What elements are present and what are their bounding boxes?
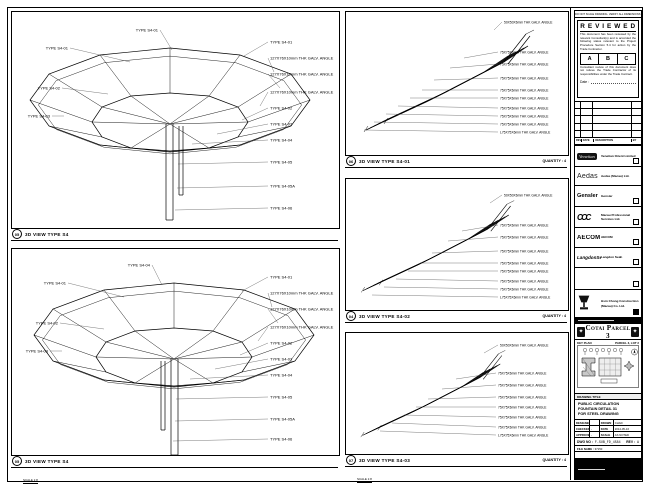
callout-leader-line (215, 359, 268, 369)
callout-label: TYPE S4-01 (270, 274, 293, 279)
consultant-row-aecom: AECOM AECOM (575, 228, 641, 248)
consultant-row-gensler: Gensler Gensler (575, 186, 641, 207)
callout-leader-line (68, 283, 124, 297)
rev-label: REV : (626, 440, 635, 444)
callout-label: 127X76X10mm THK GALV. ANGLE (270, 55, 334, 60)
callout-label: TYPE S4-03 (270, 356, 293, 361)
callout-label: 127X76X10mm THK GALV. ANGLE (270, 290, 334, 295)
callout-leader-line (428, 397, 496, 399)
date-fill-line (591, 79, 636, 84)
callout-leader-line (62, 88, 108, 94)
structure-drawing-s4-bottom: TYPE S4-04TYPE S4-01TYPE S4-02TYPE S4-03… (12, 249, 339, 455)
callout-label: 75X75X6mm THK GALV. ANGLE (500, 62, 549, 66)
callout-label: 75X75X6mm THK GALV. ANGLE (500, 261, 549, 265)
callout-label: 75X75X6mm THK GALV. ANGLE (500, 269, 549, 273)
structure-drawing-s4-03: 50X50X6mm THK GALV. ANGLE75X75X6mm THK G… (346, 333, 568, 454)
callout-leader-line (442, 385, 496, 389)
langdon-seah-logo: LangdonSeah (577, 255, 601, 260)
aedas-logo: Aedas (577, 173, 598, 180)
consultant-row-empty (575, 268, 641, 290)
callout-leader-line (178, 162, 268, 164)
callout-label: 75X75X6mm THK GALV. ANGLE (500, 106, 549, 110)
callout-leader-line (490, 195, 502, 203)
detail-number-bubble: 05 (12, 456, 22, 466)
consultant-row-venetian: Venetian Venetian Orient Limited (575, 146, 641, 167)
callout-leader-line (396, 279, 498, 281)
drawing-sheet-page: { "panels": [ {"key":"tl","num":"05","ti… (0, 0, 650, 488)
stamp-paragraph-1: This document has been reviewed by the r… (580, 33, 636, 51)
callout-leader-line (242, 108, 268, 120)
consultant-name: Venetian Orient Limited (601, 154, 636, 158)
callout-label: 127X76X10mm THK GALV. ANGLE (270, 89, 334, 94)
consultant-checkbox (633, 219, 639, 225)
checked-label: CHECKED (575, 426, 590, 431)
callout-leader-line (152, 265, 162, 285)
callout-label: 127X76X10mm THK GALV. ANGLE (270, 71, 334, 76)
callout-leader-line (448, 237, 498, 241)
drawn-value: CHAD (614, 420, 641, 425)
review-stamp: R E V I E W E D This document has been r… (575, 18, 641, 102)
callout-label: 50X50X6mm THK GALV. ANGLE (504, 193, 553, 197)
designed-label: DESIGNED (575, 420, 590, 425)
callout-leader-line (176, 397, 268, 399)
callout-label: 75X75X6mm THK GALV. ANGLE (498, 383, 547, 387)
rev-col-header: REV (575, 139, 582, 142)
reviewed-stamp-title: R E V I E W E D (580, 22, 636, 32)
file-name-label: FILE NAME : (577, 447, 594, 451)
consultant-checkbox (633, 259, 639, 265)
callout-label: TYPE S4-01 (136, 27, 159, 32)
dwg-no-label: DWG NO : (577, 440, 593, 444)
consultant-name: Macau Professional Services Ltd. (601, 213, 630, 221)
callout-leader-line (384, 287, 498, 289)
callout-label: L75X75X6mm THK GALV. ANGLE (500, 130, 551, 134)
contractor-name: Hsin Chong Construction (Macau) Co. Ltd. (601, 299, 638, 307)
callout-label: 75X75X6mm THK GALV. ANGLE (498, 405, 547, 409)
drawing-title-line-3: FOR STEEL DRAWING (578, 412, 638, 417)
consultant-name: Aedas (Macau) Ltd. (601, 174, 629, 178)
callout-label: TYPE S4-04 (128, 262, 151, 267)
callout-leader-line (432, 251, 498, 253)
dwg-no-value: F-SUB_FD_4584 (595, 440, 621, 444)
drawing-title: PUBLIC CIRCULATION FOUNTAIN DETAIL 31 FO… (575, 400, 641, 420)
bottom-black-bar (575, 459, 641, 479)
view-scale: SCALE 1:8 (357, 477, 372, 483)
key-plan-map (577, 345, 639, 389)
consultant-checkbox (633, 281, 639, 287)
scale-label: SCALE (600, 432, 614, 437)
consultant-row-aedas: Aedas Aedas (Macau) Ltd. (575, 167, 641, 186)
callout-label: 75X75X6mm THK GALV. ANGLE (500, 88, 549, 92)
panel-label-s4-03: 07 3D VIEW TYPE S4-03 QUANTITY : 4 SCALE… (345, 455, 567, 485)
structure-drawing-s4-01: 50X50X6mm THK GALV. ANGLE75X75X6mm THK G… (346, 12, 568, 155)
callout-label: 75X75X6mm THK GALV. ANGLE (500, 96, 549, 100)
callout-label: 75X75X6mm THK GALV. ANGLE (500, 114, 549, 118)
mps-logo: CCC (577, 213, 590, 222)
callout-label: TYPE S4-03 (270, 121, 293, 126)
viewport-3d-view-type-s4-03: 50X50X6mm THK GALV. ANGLE75X75X6mm THK G… (345, 332, 569, 455)
rev-value: A (637, 440, 639, 444)
banner-ornament-right-icon: ✦ (631, 327, 639, 337)
callout-label: TYPE S4-03 (28, 113, 51, 118)
callout-leader-line (374, 122, 498, 124)
callout-label: TYPE S4-01 (270, 39, 293, 44)
callout-label: TYPE S4-06 (270, 205, 293, 210)
detail-number-bubble: 07 (346, 455, 356, 465)
view-quantity: QUANTITY : 4 (543, 159, 567, 163)
do-not-scale-note: DO NOT SCALE DRAWING. VERIFY ALL DIMENSI… (575, 11, 641, 18)
aecom-logo: AECOM (577, 235, 600, 241)
sheet-border: TYPE S4-01TYPE S4-01TYPE S4-02TYPE S4-03… (7, 7, 643, 482)
callout-label: TYPE S4-06 (270, 436, 293, 441)
view-title: 3D VIEW TYPE S4-02 (359, 314, 543, 319)
callout-leader-line (175, 419, 268, 421)
structure-drawing-s4-top: TYPE S4-01TYPE S4-01TYPE S4-02TYPE S4-03… (12, 12, 339, 228)
callout-leader-line (160, 30, 172, 50)
approved-label: APPROVED (575, 432, 590, 437)
date-col-header: DATE (582, 139, 595, 142)
callout-label: 127X76X10mm THK GALV. ANGLE (270, 324, 334, 329)
callout-label: 75X75X6mm THK GALV. ANGLE (500, 235, 549, 239)
contractor-checkbox (633, 309, 639, 315)
callout-label: 75X75X6mm THK GALV. ANGLE (500, 279, 549, 283)
contractor-trophy-logo (577, 295, 591, 311)
callout-label: 75X75X6mm THK GALV. ANGLE (498, 425, 547, 429)
detail-number-bubble: 04 (346, 311, 356, 321)
consultant-name: Langdon Seah (601, 255, 622, 259)
callout-label: TYPE S4-02 (38, 85, 61, 90)
callout-leader-line (260, 92, 268, 106)
status-grade-boxes: A B C (580, 53, 636, 65)
cad-file-row (575, 452, 641, 459)
viewport-3d-view-type-s4-top: TYPE S4-01TYPE S4-01TYPE S4-02TYPE S4-03… (11, 11, 340, 229)
revision-table-header: REV DATE DESCRIPTION BY (575, 138, 641, 145)
callout-label: TYPE S4-05 (270, 159, 293, 164)
detail-number-bubble: 05 (12, 229, 22, 239)
scale-value: AS NOTED (614, 432, 641, 437)
banner-ornament-left-icon: ✦ (577, 327, 585, 337)
callout-label: TYPE S4-01 (44, 280, 67, 285)
callout-leader-line (380, 431, 496, 435)
callout-label: L75X75X6mm THK GALV. ANGLE (500, 295, 551, 299)
callout-label: TYPE S4-02 (36, 320, 59, 325)
callout-leader-line (372, 295, 498, 297)
callout-label: L75X75X6mm THK GALV. ANGLE (498, 433, 549, 437)
approved-value: - (590, 432, 600, 437)
callout-label: 50X50X6mm THK GALV. ANGLE (504, 20, 553, 24)
contractor-row: Hsin Chong Construction (Macau) Co. Ltd. (575, 290, 641, 318)
drawn-label: DRAWN (600, 420, 614, 425)
date-label: DATE (600, 426, 614, 431)
view-title: 3D VIEW TYPE S4-03 (359, 458, 543, 463)
callout-label: TYPE S4-04 (270, 372, 293, 377)
project-name: Cotai Parcel 3 (585, 324, 631, 340)
venetian-logo: Venetian (577, 153, 597, 160)
view-quantity: QUANTITY : 4 (543, 458, 567, 462)
view-title: 3D VIEW TYPE S4-01 (359, 159, 543, 164)
titleblock-divider (570, 8, 571, 480)
gensler-logo: Gensler (577, 193, 598, 199)
callout-label: 75X75X6mm THK GALV. ANGLE (500, 287, 549, 291)
callout-leader-line (173, 439, 268, 441)
callout-label: 75X75X6mm THK GALV. ANGLE (498, 371, 547, 375)
callout-label: TYPE S4-02 (270, 105, 293, 110)
callout-label: TYPE S4-03 (26, 348, 49, 353)
consultant-checkbox (633, 198, 639, 204)
checked-value: - (590, 426, 600, 431)
callout-leader-line (190, 375, 268, 379)
view-quantity: QUANTITY : 4 (543, 314, 567, 318)
grade-c: C (618, 54, 635, 64)
file-name-value: 37150 (595, 447, 603, 451)
consultant-row-mps: CCC Macau Professional Services Ltd. (575, 207, 641, 228)
callout-label: TYPE S4-01 (46, 45, 69, 50)
callout-leader-line (464, 52, 498, 58)
callout-label: 75X75X6mm THK GALV. ANGLE (500, 50, 549, 54)
callout-label: 127X76X10mm THK GALV. ANGLE (270, 306, 334, 311)
callout-leader-line (60, 323, 104, 329)
callout-label: TYPE S4-02 (270, 340, 293, 345)
view-scale: SCALE 1:8 (23, 478, 38, 484)
callout-label: TYPE S4-05A (270, 183, 295, 188)
view-title: 3D VIEW TYPE S4 (25, 459, 337, 464)
callout-label: 75X75X6mm THK GALV. ANGLE (500, 249, 549, 253)
callout-label: TYPE S4-05 (270, 394, 293, 399)
structure-drawing-s4-02: 50X50X6mm THK GALV. ANGLE75X75X6mm THK G… (346, 179, 568, 310)
grade-b: B (599, 54, 617, 64)
grade-a: A (581, 54, 599, 64)
key-plan: KEY PLAN PARCEL 3, LOT 2 (575, 340, 641, 394)
callout-leader-line (404, 415, 496, 417)
callout-label: 75X75X6mm THK GALV. ANGLE (498, 395, 547, 399)
panel-label-s4-bottom: 05 3D VIEW TYPE S4 SCALE 1:8 (11, 456, 338, 486)
callout-label: 75X75X6mm THK GALV. ANGLE (500, 223, 549, 227)
signoff-fields: DESIGNED DRAWN CHAD CHECKED - DATE 2014-… (575, 420, 641, 438)
callout-leader-line (484, 345, 498, 353)
viewport-3d-view-type-s4-01: 50X50X6mm THK GALV. ANGLE75X75X6mm THK G… (345, 11, 569, 156)
title-block: DO NOT SCALE DRAWING. VERIFY ALL DIMENSI… (574, 10, 642, 480)
view-title: 3D VIEW TYPE S4 (25, 232, 337, 237)
date-value: 2014-05-16 (614, 426, 641, 431)
consultant-checkbox (633, 239, 639, 245)
consultant-checkbox (633, 158, 639, 164)
consultant-name: AECOM (601, 235, 613, 239)
callout-label: TYPE S4-04 (270, 137, 293, 142)
callout-leader-line (244, 42, 268, 56)
callout-leader-line (177, 186, 268, 188)
callout-leader-line (242, 277, 268, 291)
callout-label: 75X75X6mm THK GALV. ANGLE (498, 415, 547, 419)
detail-number-bubble: 06 (346, 156, 356, 166)
callout-label: 50X50X6mm THK GALV. ANGLE (500, 343, 549, 347)
date-label: Date : (580, 80, 589, 84)
revision-table: REV DATE DESCRIPTION BY (575, 102, 641, 146)
callout-label: 75X75X6mm THK GALV. ANGLE (500, 122, 549, 126)
stamp-paragraph-2: Consultant review of this document does … (580, 66, 636, 77)
by-col-header: BY (632, 139, 641, 142)
consultant-name: Gensler (601, 194, 613, 198)
viewport-3d-view-type-s4-02: 50X50X6mm THK GALV. ANGLE75X75X6mm THK G… (345, 178, 569, 311)
callout-leader-line (70, 48, 130, 62)
callout-leader-line (192, 140, 268, 144)
callout-leader-line (175, 208, 268, 210)
callout-leader-line (364, 130, 498, 132)
callout-label: 75X75X6mm THK GALV. ANGLE (500, 76, 549, 80)
callout-leader-line (392, 423, 496, 427)
callout-label: TYPE S4-05A (270, 416, 295, 421)
project-banner: ✦ Cotai Parcel 3 ✦ (575, 324, 641, 340)
drawing-number-row: DWG NO : F-SUB_FD_4584 REV : A (575, 438, 641, 446)
callout-leader-line (494, 22, 502, 30)
viewport-3d-view-type-s4-bottom: TYPE S4-04TYPE S4-01TYPE S4-02TYPE S4-03… (11, 248, 340, 456)
callout-leader-line (462, 225, 498, 231)
callout-leader-line (386, 114, 498, 116)
consultant-row-langdon-seah: LangdonSeah Langdon Seah (575, 248, 641, 268)
callout-leader-line (434, 78, 498, 80)
description-col-header: DESCRIPTION (594, 139, 631, 142)
